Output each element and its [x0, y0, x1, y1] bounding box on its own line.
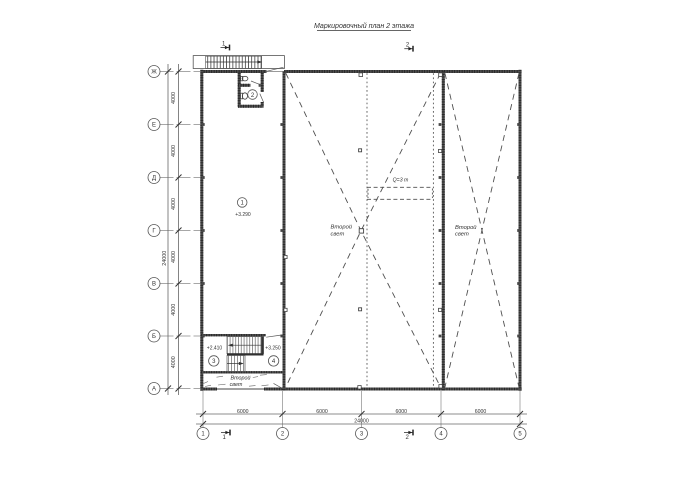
svg-text:Е: Е	[152, 123, 156, 129]
svg-text:Второй: Второй	[331, 224, 353, 231]
svg-text:6000: 6000	[475, 409, 487, 415]
svg-text:Второй: Второй	[230, 375, 250, 382]
svg-text:Второй: Второй	[455, 224, 477, 231]
svg-text:Б: Б	[152, 334, 156, 340]
svg-text:4000: 4000	[171, 356, 177, 368]
svg-text:свет: свет	[331, 231, 345, 237]
svg-text:+2.410: +2.410	[207, 345, 223, 351]
svg-text:Маркировочный план 2 этажа: Маркировочный план 2 этажа	[314, 22, 414, 30]
svg-text:+3.250: +3.250	[265, 345, 281, 351]
svg-text:2: 2	[406, 435, 410, 441]
svg-text:+3.290: +3.290	[235, 212, 251, 218]
svg-text:4000: 4000	[171, 251, 177, 263]
svg-text:Д: Д	[152, 176, 156, 182]
svg-text:свет: свет	[230, 382, 243, 388]
svg-text:Q=3 т: Q=3 т	[393, 178, 409, 184]
svg-text:4000: 4000	[171, 304, 177, 316]
svg-text:4000: 4000	[171, 92, 177, 104]
svg-text:24000: 24000	[162, 251, 168, 266]
svg-text:6000: 6000	[316, 409, 328, 415]
svg-text:Ж: Ж	[151, 70, 157, 76]
svg-text:В: В	[152, 282, 156, 288]
svg-text:6000: 6000	[395, 409, 407, 415]
svg-text:4000: 4000	[171, 145, 177, 157]
svg-text:6000: 6000	[237, 409, 249, 415]
svg-text:А: А	[152, 387, 156, 393]
svg-text:4000: 4000	[171, 198, 177, 210]
svg-text:24000: 24000	[354, 419, 369, 425]
svg-text:свет: свет	[455, 232, 469, 238]
svg-text:1: 1	[223, 435, 227, 441]
